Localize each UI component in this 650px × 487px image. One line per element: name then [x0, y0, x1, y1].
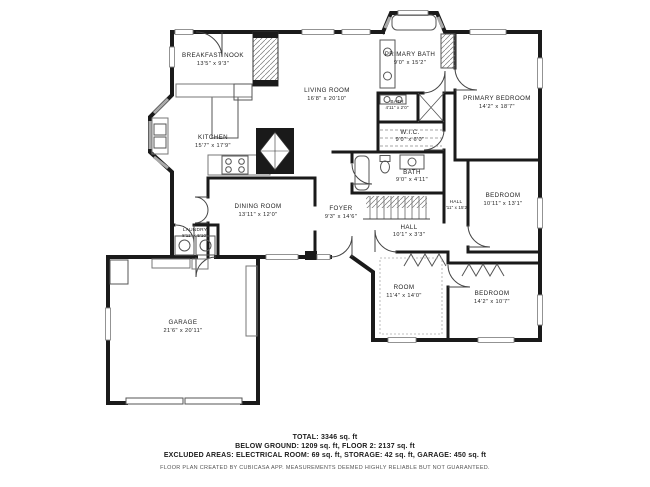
room-label-primary-bath: PRIMARY BATH — [385, 51, 436, 58]
room-label-breakfast-nook: BREAKFAST NOOK — [182, 52, 244, 59]
fixtures — [110, 15, 455, 404]
room-dims-wic: 9'0" x 6'0" — [396, 137, 425, 143]
room-label-kitchen: KITCHEN — [198, 134, 228, 141]
room-label-room: ROOM — [394, 284, 415, 291]
room-dims-breakfast-nook: 13'5" x 9'3" — [197, 61, 229, 67]
vanity-2 — [400, 155, 424, 169]
garage-stoop — [192, 259, 208, 269]
room-label-primary-bedroom: PRIMARY BEDROOM — [463, 95, 531, 102]
floor-plan-page: BREAKFAST NOOK 13'5" x 9'3" LIVING ROOM … — [0, 0, 650, 487]
footer-total: TOTAL: 3346 sq. ft — [0, 433, 650, 442]
footer-excluded: EXCLUDED AREAS: ELECTRICAL ROOM: 69 sq. … — [0, 451, 650, 460]
kitchen-counter-top — [176, 84, 252, 97]
room-label-living-room: LIVING ROOM — [304, 87, 350, 94]
room-label-bedroom-mid: BEDROOM — [486, 192, 521, 199]
porch-pillar — [305, 251, 317, 260]
room-dims-foyer: 9'3" x 14'6" — [325, 214, 357, 220]
garage-door-2 — [185, 398, 242, 404]
room-label-wic: W.I.C. — [400, 129, 419, 136]
sink-bowl-1 — [154, 124, 166, 135]
room-dims-garage: 21'6" x 20'11" — [164, 328, 203, 334]
bay-counter — [152, 118, 168, 154]
washer — [175, 236, 194, 255]
double-vanity — [380, 40, 395, 88]
room-dims-dining-room: 13'11" x 12'0" — [239, 212, 278, 218]
room-dims-laundry: 8'11" x 5'10" — [182, 233, 208, 238]
room-dims-bedroom-mid: 10'11" x 13'1" — [484, 201, 523, 207]
room-label-bath-center: BATH — [403, 169, 421, 176]
room-dims-primary-bedroom: 14'2" x 18'7" — [479, 104, 515, 110]
room-labels: BREAKFAST NOOK 13'5" x 9'3" LIVING ROOM … — [164, 51, 531, 334]
fireplace — [256, 128, 294, 174]
room-label-hall-center: HALL — [400, 224, 417, 231]
shower — [441, 34, 455, 68]
footer-floors: BELOW GROUND: 1209 sq. ft, FLOOR 2: 2137… — [0, 442, 650, 451]
room-dims-room: 11'4" x 14'0" — [386, 293, 421, 299]
pantry-chase — [253, 32, 278, 86]
exterior-walls — [108, 13, 540, 403]
room-dims-bedroom-bottom: 14'2" x 10'7" — [474, 299, 510, 305]
room-label-dining-room: DINING ROOM — [234, 203, 281, 210]
room-label-garage: GARAGE — [169, 319, 198, 326]
dryer — [196, 236, 215, 255]
floor-plan-canvas: BREAKFAST NOOK 13'5" x 9'3" LIVING ROOM … — [0, 0, 650, 487]
room-label-bedroom-bottom: BEDROOM — [475, 290, 510, 297]
footer-disclaimer: FLOOR PLAN CREATED BY CUBICASA APP. MEAS… — [0, 464, 650, 473]
room-dims-hall-right: 4'11" x 15'2" — [443, 205, 469, 210]
staircase — [363, 196, 430, 219]
room-dims-hall-center: 10'1" x 3'3" — [393, 232, 425, 238]
room-dims-living-room: 16'8" x 20'10" — [307, 96, 346, 102]
room-dims-kitchen: 15'7" x 17'9" — [195, 143, 231, 149]
footer-summary: TOTAL: 3346 sq. ft BELOW GROUND: 1209 sq… — [0, 433, 650, 473]
room-dims-bath-small: 4'11" x 2'0" — [385, 105, 408, 110]
room-label-foyer: FOYER — [329, 205, 352, 212]
garage-shelf — [152, 259, 190, 268]
bathtub-2 — [355, 156, 369, 190]
kitchen-island — [212, 97, 238, 138]
room-dims-primary-bath: 9'0" x 15'2" — [394, 60, 426, 66]
closet-x — [418, 93, 444, 122]
garage-closet — [110, 260, 128, 284]
sink-bowl-2 — [154, 137, 166, 148]
toilet — [381, 161, 390, 173]
garage-door-1 — [126, 398, 183, 404]
bathtub — [392, 15, 436, 30]
garage-bench — [246, 266, 257, 336]
room-dims-bath-center: 9'0" x 4'11" — [396, 177, 428, 183]
closet-bifold-doors — [404, 254, 504, 276]
